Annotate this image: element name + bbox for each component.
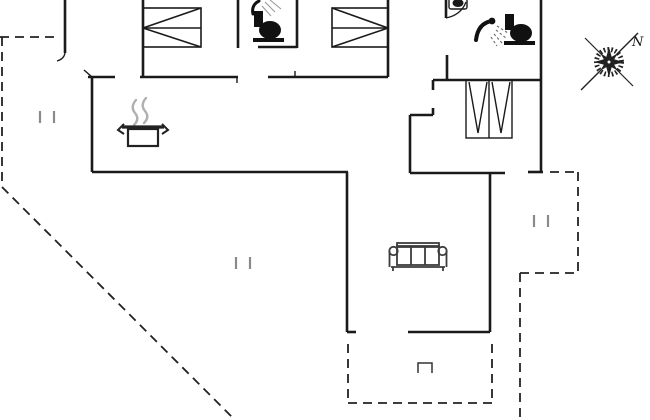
window-marks (40, 111, 548, 269)
toilet-icon (504, 14, 535, 45)
floor-plan-svg: N (0, 0, 650, 420)
double-bed-icon (143, 8, 201, 47)
north-label: N (631, 35, 644, 50)
cooking-pot-icon (118, 98, 168, 146)
walls (65, 0, 543, 332)
dashed-line (2, 187, 235, 420)
terrace-step-icon (418, 363, 432, 373)
shower-icon (476, 18, 508, 46)
double-bed-icon (332, 8, 388, 47)
toilet-icon (253, 11, 284, 42)
wardrobe-icon (466, 80, 512, 138)
compass-rose: N (581, 33, 644, 90)
floor-plan-canvas: N (0, 0, 650, 420)
door-swing-arc (57, 53, 65, 61)
sofa-icon (389, 243, 446, 271)
